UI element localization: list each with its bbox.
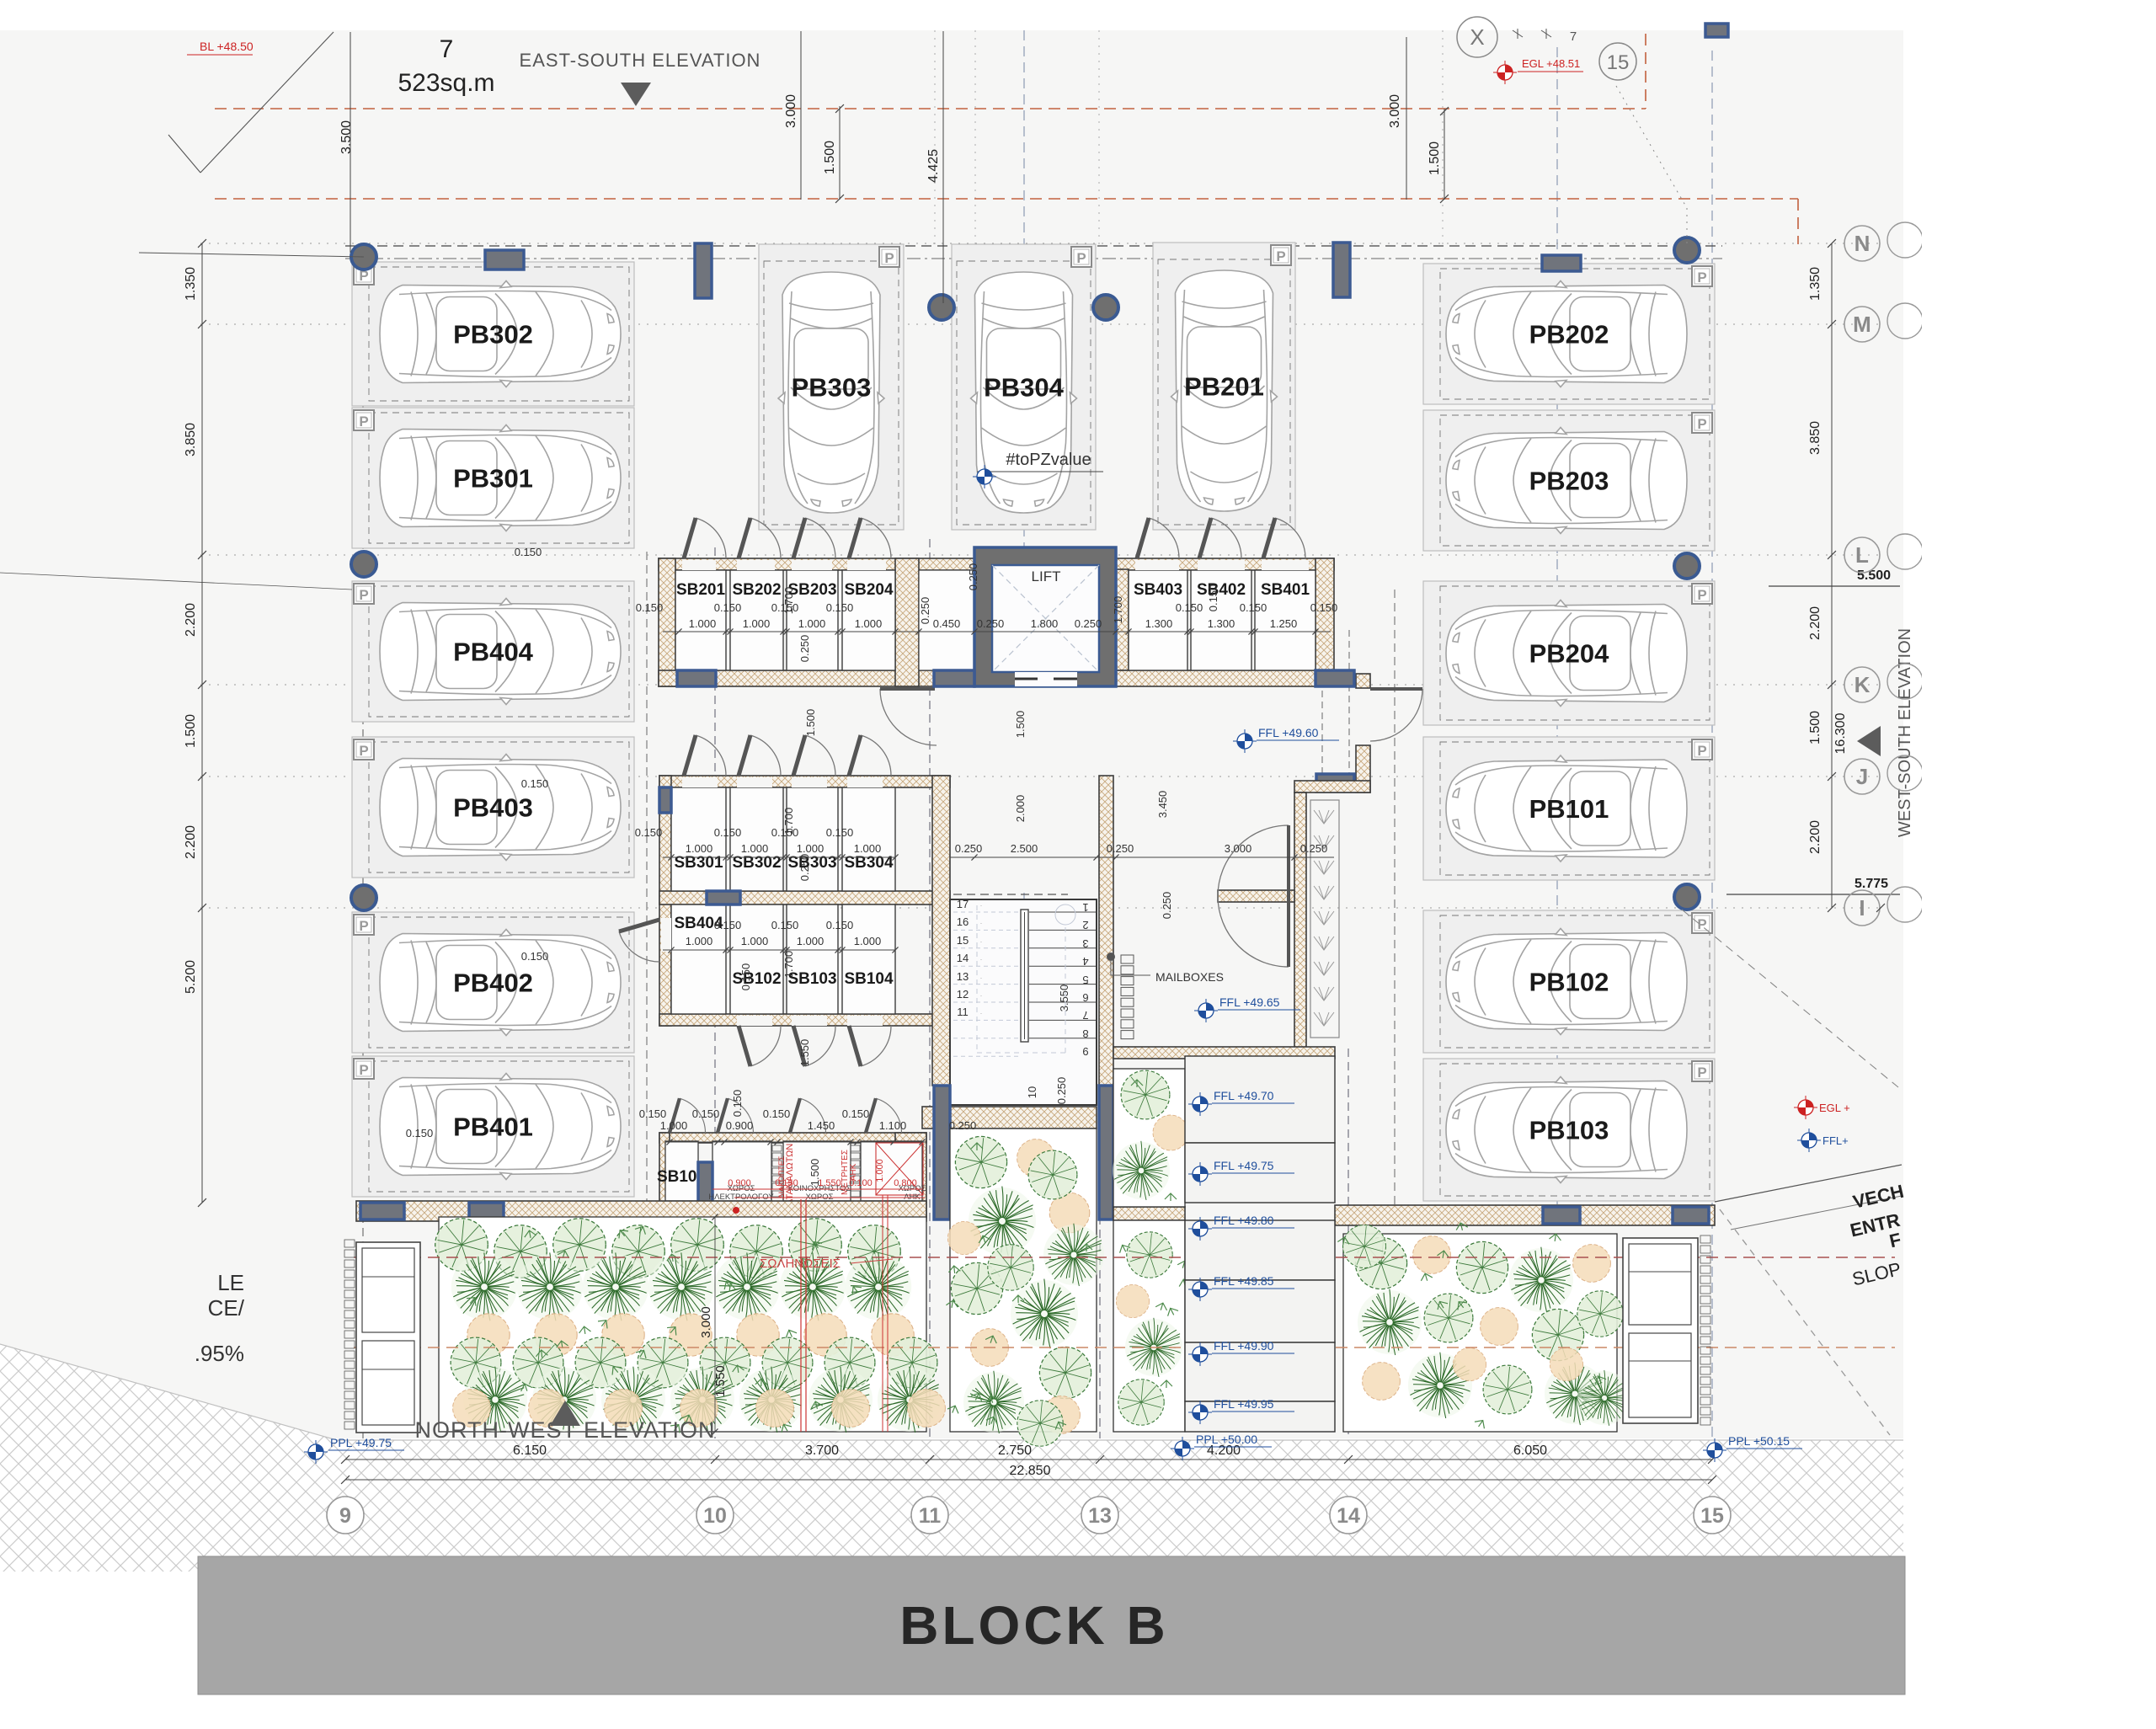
svg-text:13: 13 — [957, 970, 969, 983]
svg-text:3.000: 3.000 — [1388, 94, 1402, 128]
svg-text:3: 3 — [1082, 937, 1088, 950]
svg-text:FFL +49.90: FFL +49.90 — [1214, 1339, 1274, 1353]
svg-text:1.100: 1.100 — [879, 1119, 907, 1132]
svg-text:0.150: 0.150 — [521, 777, 549, 790]
svg-text:PB401: PB401 — [453, 1113, 533, 1142]
svg-text:1.550: 1.550 — [713, 1365, 728, 1397]
svg-text:0.450: 0.450 — [933, 617, 961, 630]
svg-text:0.150: 0.150 — [521, 950, 549, 963]
svg-text:0.250: 0.250 — [1107, 842, 1134, 855]
svg-text:PB201: PB201 — [1184, 372, 1264, 402]
svg-text:0.150: 0.150 — [639, 1107, 667, 1120]
svg-text:.: . — [980, 937, 982, 944]
svg-text:1.350: 1.350 — [184, 267, 198, 301]
svg-text:1.550: 1.550 — [798, 1039, 811, 1067]
svg-text:.: . — [980, 954, 982, 962]
svg-text:523sq.m: 523sq.m — [398, 69, 494, 97]
svg-text:16: 16 — [957, 915, 969, 928]
svg-text:6: 6 — [1082, 991, 1088, 1004]
svg-text:0.150: 0.150 — [692, 1107, 720, 1120]
svg-text:1.000: 1.000 — [797, 935, 825, 947]
svg-text:SB401: SB401 — [1261, 581, 1310, 599]
svg-text:1.000: 1.000 — [797, 842, 825, 855]
svg-text:MAILBOXES: MAILBOXES — [1155, 970, 1224, 984]
svg-text:1.500: 1.500 — [823, 141, 837, 174]
svg-text:EGL +: EGL + — [1819, 1102, 1850, 1114]
svg-text:2: 2 — [1082, 919, 1088, 931]
svg-text:0.250: 0.250 — [955, 842, 983, 855]
svg-text:0.250: 0.250 — [1300, 842, 1328, 855]
svg-text:1.000: 1.000 — [660, 1119, 688, 1132]
svg-text:1.000: 1.000 — [689, 617, 717, 630]
svg-text:0.250: 0.250 — [1075, 617, 1102, 630]
svg-text:0.150: 0.150 — [775, 1178, 798, 1188]
svg-text:1.550: 1.550 — [818, 1178, 841, 1188]
svg-text:BLOCK B: BLOCK B — [899, 1595, 1169, 1656]
svg-text:2.750: 2.750 — [998, 1444, 1032, 1458]
svg-text:5.775: 5.775 — [1854, 877, 1888, 891]
svg-text:0.150: 0.150 — [826, 919, 854, 931]
svg-text:1.500: 1.500 — [808, 1159, 821, 1187]
svg-text:1.000: 1.000 — [854, 842, 882, 855]
svg-text:PPL +49.75: PPL +49.75 — [330, 1436, 392, 1449]
svg-text:PB303: PB303 — [792, 373, 872, 403]
svg-text:0.250: 0.250 — [798, 635, 811, 663]
svg-text:3.450: 3.450 — [1156, 791, 1169, 819]
svg-text:0.900: 0.900 — [728, 1178, 751, 1188]
svg-text:PB403: PB403 — [453, 793, 533, 823]
svg-text:1.450: 1.450 — [808, 1119, 835, 1132]
svg-text:10: 10 — [703, 1504, 727, 1528]
svg-text:0.150: 0.150 — [771, 919, 799, 931]
svg-text:3.550: 3.550 — [1058, 985, 1070, 1012]
svg-text:1.000: 1.000 — [741, 842, 769, 855]
svg-text:N: N — [1854, 231, 1870, 256]
svg-text:0.250: 0.250 — [1055, 1077, 1068, 1105]
svg-text:FFL +49.95: FFL +49.95 — [1214, 1397, 1274, 1411]
svg-text:0.100: 0.100 — [849, 1178, 873, 1188]
svg-text:0.150: 0.150 — [842, 1107, 870, 1120]
svg-text:15: 15 — [1700, 1504, 1724, 1528]
svg-text:1.500: 1.500 — [184, 714, 198, 748]
svg-text:1.700: 1.700 — [782, 808, 795, 835]
svg-text:PPL +50.00: PPL +50.00 — [1196, 1433, 1257, 1446]
svg-text:0.150: 0.150 — [714, 601, 742, 614]
svg-text:3.500: 3.500 — [339, 120, 354, 154]
svg-text:SB104: SB104 — [844, 970, 894, 988]
svg-text:0.250: 0.250 — [1161, 892, 1173, 920]
svg-text:0.150: 0.150 — [406, 1127, 434, 1139]
svg-text:0.150: 0.150 — [515, 546, 542, 558]
svg-text:0.900: 0.900 — [726, 1119, 754, 1132]
svg-text:9: 9 — [1082, 1045, 1088, 1058]
svg-text:5.200: 5.200 — [184, 960, 198, 994]
svg-text:FFL +49.75: FFL +49.75 — [1214, 1159, 1274, 1172]
svg-text:2.500: 2.500 — [1011, 842, 1038, 855]
svg-text:EGL +48.51: EGL +48.51 — [1522, 57, 1580, 70]
svg-text:1.000: 1.000 — [854, 935, 882, 947]
svg-text:PB302: PB302 — [453, 320, 533, 350]
svg-text:.95%: .95% — [195, 1341, 244, 1366]
svg-text:1.000: 1.000 — [686, 935, 713, 947]
svg-text:PB202: PB202 — [1529, 320, 1609, 350]
svg-text:1.700: 1.700 — [782, 951, 795, 979]
svg-text:1.000: 1.000 — [855, 617, 883, 630]
svg-text:.: . — [980, 973, 982, 980]
svg-text:1.300: 1.300 — [1145, 617, 1173, 630]
svg-text:FFL +49.85: FFL +49.85 — [1214, 1274, 1274, 1288]
svg-text:.: . — [980, 900, 982, 908]
svg-text:0.150: 0.150 — [1176, 601, 1203, 614]
svg-text:FFL +49.70: FFL +49.70 — [1214, 1089, 1274, 1102]
svg-text:1.700: 1.700 — [782, 587, 795, 615]
svg-text:PB204: PB204 — [1529, 639, 1610, 669]
svg-text:0.150: 0.150 — [714, 919, 742, 931]
svg-text:SB302: SB302 — [732, 854, 781, 872]
svg-text:PB402: PB402 — [453, 969, 533, 998]
svg-text:5: 5 — [1082, 974, 1088, 986]
svg-text:SB402: SB402 — [1197, 581, 1246, 599]
svg-text:0.150: 0.150 — [739, 963, 752, 991]
svg-text:4: 4 — [1082, 955, 1088, 968]
svg-text:1.000: 1.000 — [743, 617, 771, 630]
svg-text:PB101: PB101 — [1529, 794, 1609, 824]
svg-text:FFL +49.80: FFL +49.80 — [1214, 1214, 1274, 1227]
svg-text:1.250: 1.250 — [1270, 617, 1298, 630]
svg-text:M: M — [1853, 312, 1871, 337]
svg-text:11: 11 — [957, 1006, 969, 1018]
svg-text:6.150: 6.150 — [513, 1444, 547, 1458]
svg-text:1.000: 1.000 — [798, 617, 826, 630]
svg-text:SB203: SB203 — [787, 581, 836, 599]
svg-text:0.250: 0.250 — [798, 854, 811, 882]
svg-text:J: J — [1856, 764, 1868, 789]
svg-text:PB203: PB203 — [1529, 467, 1609, 496]
svg-text:3.000: 3.000 — [1225, 842, 1252, 855]
svg-text:0.150: 0.150 — [1207, 584, 1219, 612]
svg-text:PB301: PB301 — [453, 464, 533, 494]
svg-text:10: 10 — [1026, 1086, 1038, 1098]
svg-text:PB102: PB102 — [1529, 968, 1609, 997]
svg-text:1.500: 1.500 — [1428, 141, 1442, 175]
svg-text:ΣΩΛΗΝΩΣΕΙΣ: ΣΩΛΗΝΩΣΕΙΣ — [760, 1257, 841, 1271]
svg-text:BL +48.50: BL +48.50 — [200, 40, 253, 53]
svg-text:0.150: 0.150 — [636, 601, 664, 614]
svg-text:0.150: 0.150 — [731, 1090, 744, 1118]
svg-text:L: L — [1855, 542, 1869, 568]
svg-text:EAST-SOUTH ELEVATION: EAST-SOUTH ELEVATION — [520, 50, 761, 71]
svg-text:.: . — [980, 918, 982, 926]
svg-text:FFL +49.65: FFL +49.65 — [1219, 995, 1280, 1009]
svg-text:0.150: 0.150 — [826, 601, 854, 614]
svg-text:17: 17 — [957, 898, 969, 910]
svg-text:CE/: CE/ — [208, 1295, 245, 1321]
svg-text:0.250: 0.250 — [977, 617, 1005, 630]
svg-text:1.500: 1.500 — [1014, 711, 1027, 739]
svg-text:15: 15 — [1607, 51, 1630, 74]
svg-text:PB103: PB103 — [1529, 1116, 1609, 1145]
svg-text:3.000: 3.000 — [699, 1306, 713, 1338]
svg-text:2.200: 2.200 — [1808, 606, 1822, 640]
svg-text:SB304: SB304 — [844, 854, 894, 872]
svg-text:1.700: 1.700 — [1112, 596, 1124, 624]
svg-text:0.150: 0.150 — [763, 1107, 791, 1120]
svg-text:22.850: 22.850 — [1010, 1464, 1051, 1478]
svg-text:SB204: SB204 — [844, 581, 894, 599]
svg-text:#toPZvalue: #toPZvalue — [1006, 451, 1091, 469]
svg-text:16.300: 16.300 — [1833, 712, 1848, 754]
svg-text:.: . — [980, 1008, 982, 1016]
svg-text:0.150: 0.150 — [635, 826, 663, 839]
svg-text:FFL +49.60: FFL +49.60 — [1258, 726, 1319, 739]
svg-text:SB103: SB103 — [787, 970, 836, 988]
svg-text:PB304: PB304 — [984, 373, 1065, 403]
svg-text:0.800: 0.800 — [894, 1178, 917, 1188]
svg-text:7: 7 — [1082, 1009, 1088, 1022]
svg-text:LIFT: LIFT — [1032, 568, 1061, 584]
svg-text:0.150: 0.150 — [826, 826, 854, 839]
svg-text:15: 15 — [957, 934, 969, 947]
svg-text:.: . — [980, 990, 982, 998]
svg-text:13: 13 — [1088, 1504, 1112, 1528]
svg-text:2.200: 2.200 — [184, 603, 198, 637]
svg-text:2.200: 2.200 — [1808, 820, 1822, 854]
svg-text:6.050: 6.050 — [1513, 1444, 1547, 1458]
svg-text:1.300: 1.300 — [1208, 617, 1235, 630]
svg-text:4.425: 4.425 — [926, 149, 941, 183]
svg-text:FFL+: FFL+ — [1822, 1134, 1849, 1147]
svg-text:0.150: 0.150 — [1240, 601, 1267, 614]
svg-text:WEST-SOUTH ELEVATION: WEST-SOUTH ELEVATION — [1896, 628, 1914, 837]
svg-text:0.250: 0.250 — [919, 597, 931, 625]
svg-text:14: 14 — [957, 952, 969, 964]
svg-text:K: K — [1854, 672, 1870, 697]
svg-text:0.250: 0.250 — [949, 1119, 977, 1132]
svg-text:1.500: 1.500 — [804, 709, 817, 737]
svg-text:1: 1 — [1082, 901, 1088, 914]
svg-text:0.150: 0.150 — [714, 826, 742, 839]
svg-text:7: 7 — [1570, 29, 1577, 44]
svg-text:I: I — [1859, 895, 1865, 921]
svg-text:1.500: 1.500 — [1808, 711, 1822, 744]
svg-text:3.850: 3.850 — [184, 423, 198, 456]
svg-text:SB201: SB201 — [676, 581, 726, 599]
svg-text:8: 8 — [1082, 1027, 1088, 1040]
svg-text:1.000: 1.000 — [686, 842, 713, 855]
svg-text:14: 14 — [1337, 1504, 1360, 1528]
svg-text:SB303: SB303 — [787, 854, 836, 872]
svg-text:PPL +50.15: PPL +50.15 — [1728, 1434, 1790, 1448]
svg-text:9: 9 — [339, 1504, 351, 1528]
svg-text:SB202: SB202 — [732, 581, 781, 599]
svg-text:0.150: 0.150 — [1310, 601, 1338, 614]
svg-text:7: 7 — [440, 35, 454, 63]
svg-text:1.350: 1.350 — [1808, 267, 1822, 301]
svg-text:LE: LE — [217, 1270, 244, 1295]
svg-text:0.250: 0.250 — [967, 563, 979, 591]
svg-text:1.800: 1.800 — [1031, 617, 1059, 630]
svg-text:1.000: 1.000 — [875, 1159, 885, 1182]
svg-text:12: 12 — [957, 988, 969, 1001]
svg-text:2.000: 2.000 — [1014, 795, 1027, 823]
svg-text:11: 11 — [919, 1504, 942, 1528]
svg-text:PB404: PB404 — [453, 638, 534, 667]
svg-text:2.200: 2.200 — [184, 825, 198, 859]
svg-text:3.850: 3.850 — [1808, 421, 1822, 455]
svg-text:3.000: 3.000 — [784, 94, 798, 128]
svg-text:X: X — [1470, 24, 1484, 50]
svg-text:SB403: SB403 — [1134, 581, 1182, 599]
svg-text:SB301: SB301 — [674, 854, 723, 872]
svg-text:1.000: 1.000 — [741, 935, 769, 947]
svg-text:3.700: 3.700 — [805, 1444, 839, 1458]
svg-text:5.500: 5.500 — [1857, 568, 1891, 583]
